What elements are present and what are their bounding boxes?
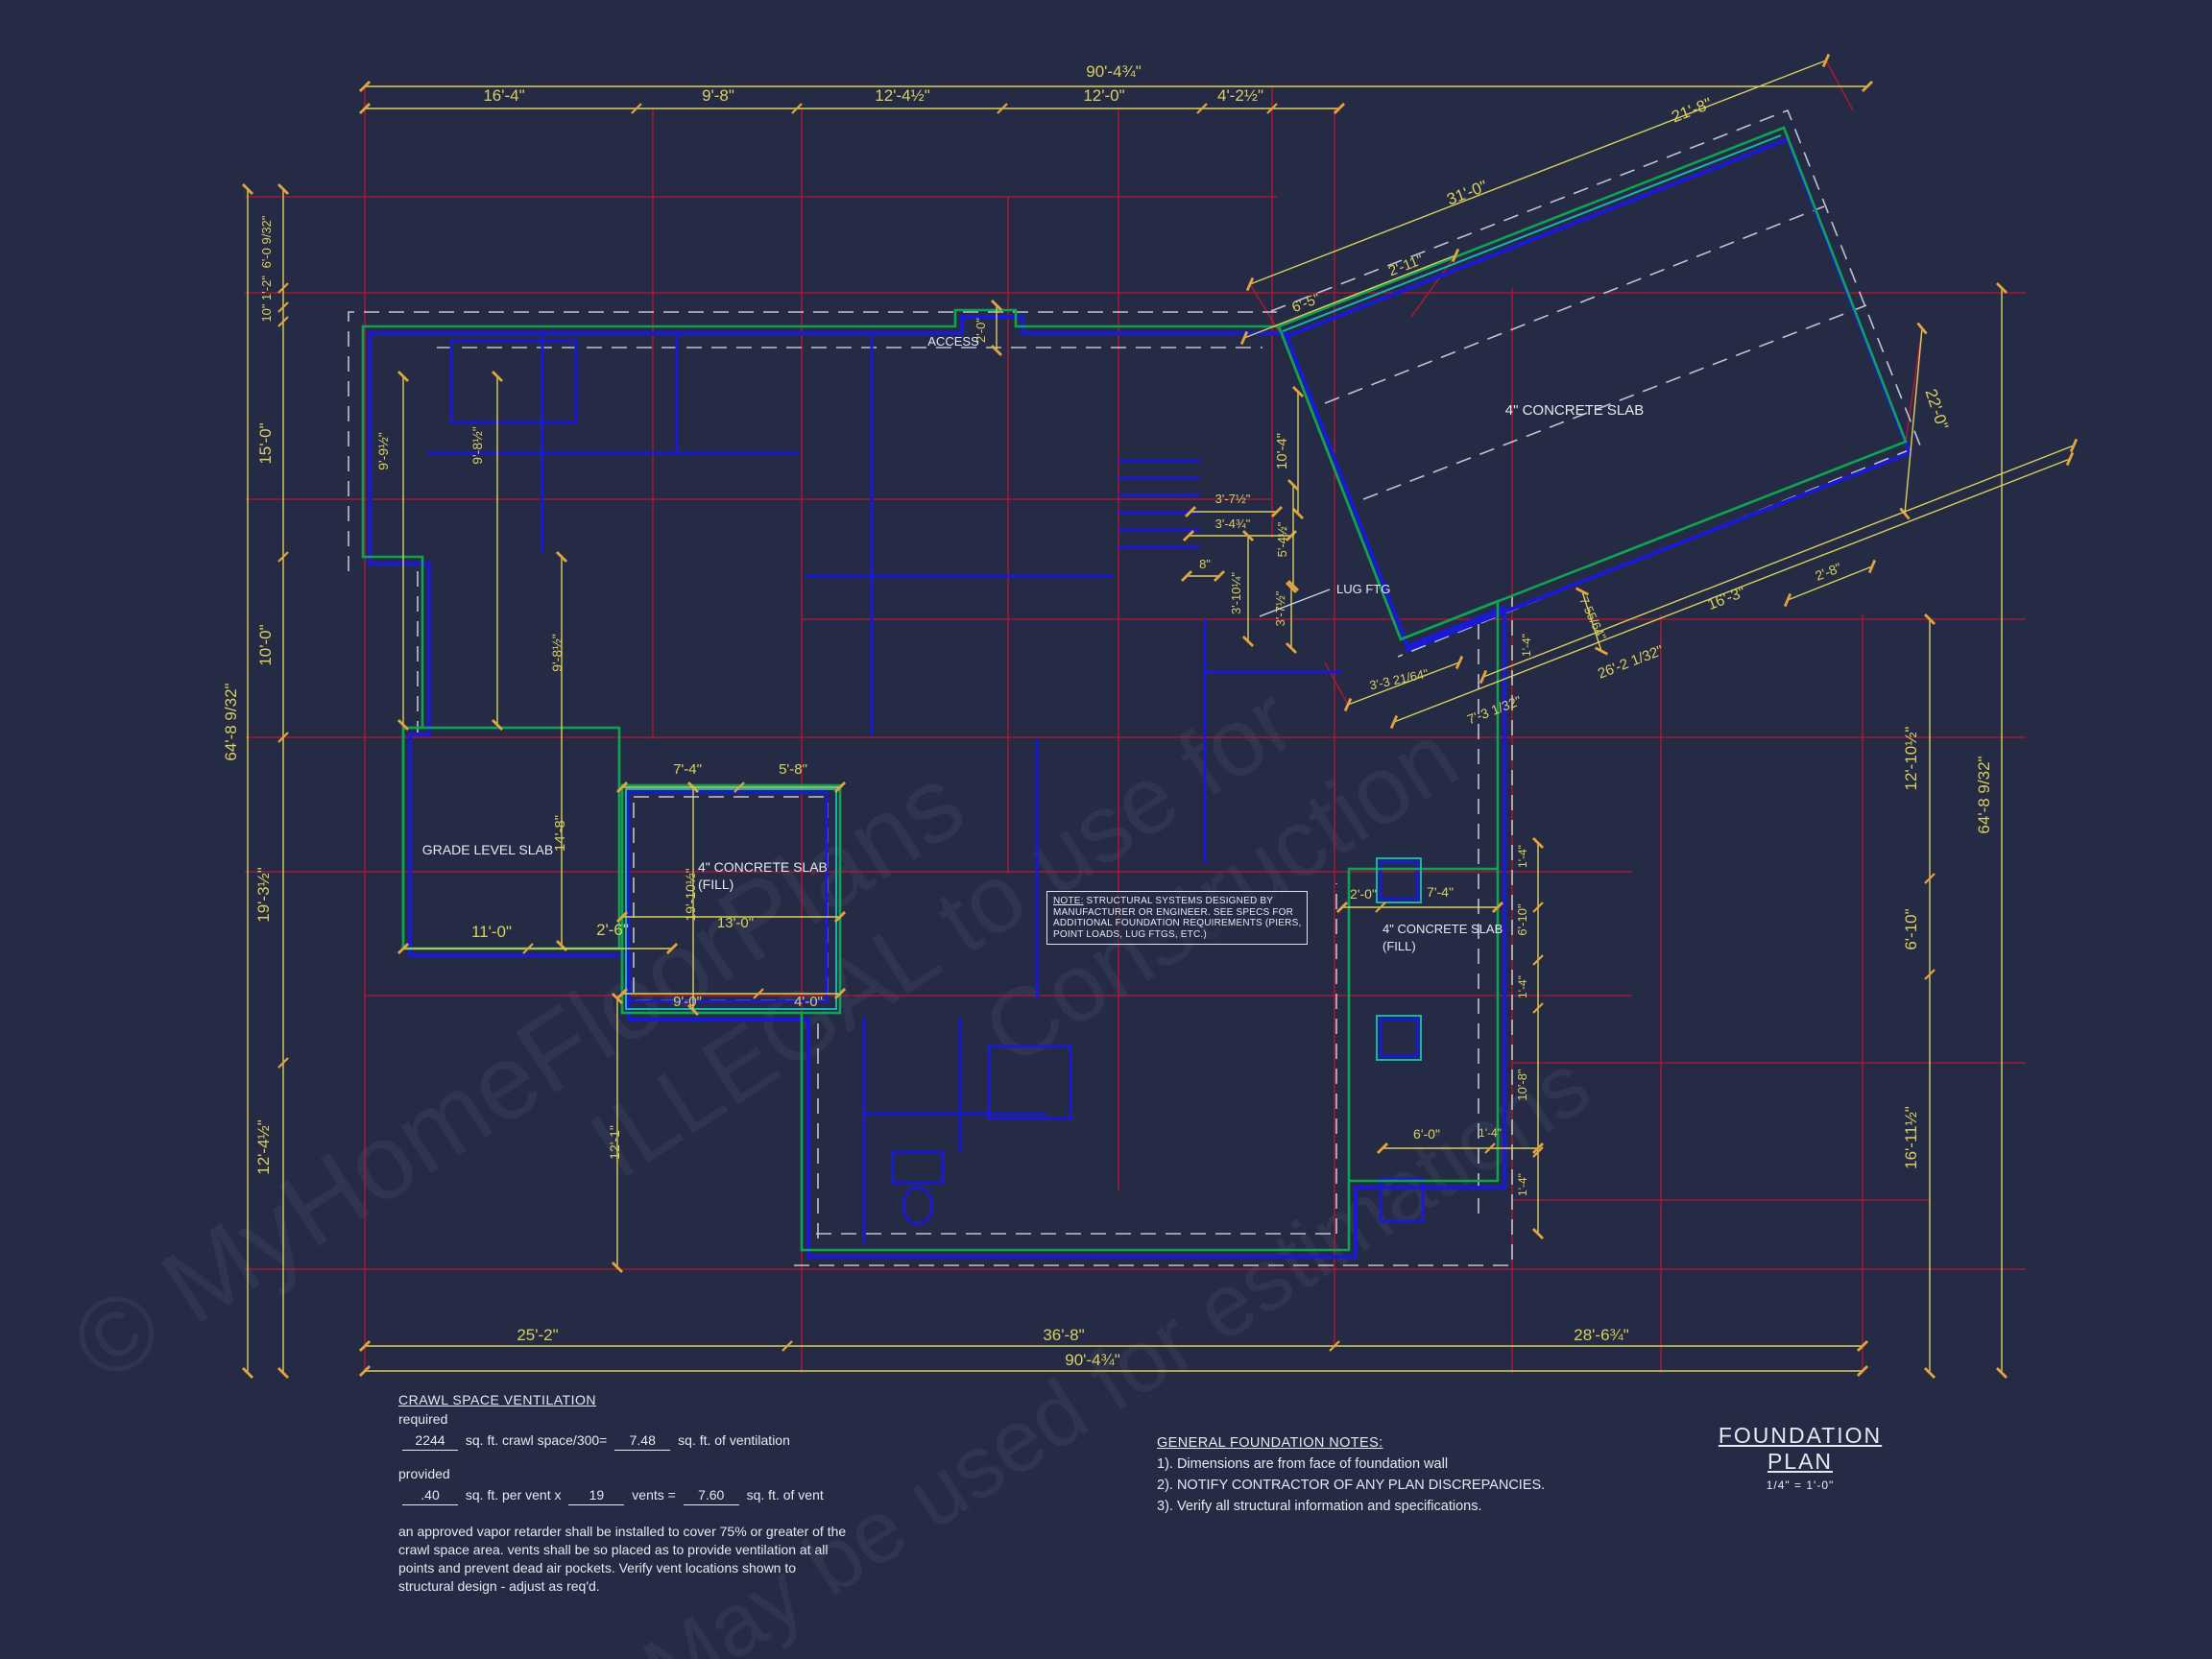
plan-label: 3'-10¼" [1229, 572, 1243, 614]
plan-label: 12'-4½" [875, 86, 929, 105]
plan-label: 2'-0" [1350, 886, 1377, 902]
plan-label: 3'-4¾" [1215, 517, 1251, 531]
plan-label: ACCESS [927, 334, 979, 349]
plan-label: 1'-4" [1479, 1126, 1502, 1140]
plan-label: 12'-10½" [1902, 727, 1920, 791]
dimension-lines [248, 60, 2074, 1373]
plan-label: 7'-4" [1427, 884, 1454, 900]
plan-label: 16'-3" [1705, 585, 1747, 613]
plan-label: 3'-3 21/64" [1368, 666, 1430, 693]
general-foundation-notes: GENERAL FOUNDATION NOTES: 1). Dimensions… [1157, 1432, 1545, 1517]
plan-label: 8" [1199, 557, 1211, 571]
plan-label: 9'-8" [702, 86, 734, 105]
plan-label: 9'-8½" [549, 634, 565, 672]
structural-note-line4: POINT LOADS, LUG FTGS, ETC.) [1053, 929, 1207, 940]
crawl-provided-label: provided [398, 1464, 898, 1483]
crawl-provided-line: .40 sq. ft. per vent x 19 vents = 7.60 s… [398, 1485, 898, 1505]
plan-label: 9'-8½" [469, 426, 485, 465]
structural-note-box: NOTE: STRUCTURAL SYSTEMS DESIGNED BY MAN… [1046, 891, 1308, 945]
plan-label: 19'-3½" [254, 867, 273, 922]
plan-label: 11'-0" [471, 923, 512, 941]
plan-label: (FILL) [1382, 939, 1416, 953]
plan-label: 1'-4" [1516, 975, 1529, 998]
crawl-required-line: 2244 sq. ft. crawl space/300= 7.48 sq. f… [398, 1431, 898, 1451]
plan-label: 64'-8 9/32" [222, 683, 240, 760]
plan-label: 10'-8" [1515, 1069, 1529, 1101]
plan-label: 1'-4" [1516, 1173, 1529, 1196]
crawl-ventilation-required-value: 7.48 [614, 1431, 670, 1451]
plan-label: 5'-8" [779, 761, 807, 778]
structural-note-line3: ADDITIONAL FOUNDATION REQUIREMENTS (PIER… [1053, 918, 1301, 928]
foundation-plan-drawing: © MyHomeFloorPlansILLEGAL to use forCons… [0, 0, 2212, 1659]
foundation-plan-sheet: © MyHomeFloorPlansILLEGAL to use forCons… [0, 0, 2212, 1659]
plan-label: 12'-1" [607, 1125, 622, 1160]
plan-label: GRADE LEVEL SLAB [422, 842, 553, 857]
vent-area-value: .40 [402, 1485, 458, 1505]
structural-note-line2: MANUFACTURER OR ENGINEER. SEE SPECS FOR [1053, 907, 1293, 918]
plan-label: 13'-0" [717, 915, 754, 931]
plan-label: 4" CONCRETE SLAB [1382, 922, 1503, 936]
plan-label: 16'-4" [483, 86, 524, 105]
structural-note-line1: STRUCTURAL SYSTEMS DESIGNED BY [1084, 896, 1274, 906]
plan-label: 21'-8" [1669, 94, 1714, 126]
plan-label: 6'-10" [1515, 903, 1529, 936]
plan-label: 4'-0" [794, 994, 823, 1010]
crawl-provided-text3: sq. ft. of vent [747, 1487, 824, 1503]
general-notes-heading: GENERAL FOUNDATION NOTES: [1157, 1432, 1545, 1454]
crawl-required-text1: sq. ft. crawl space/300= [466, 1432, 607, 1448]
plan-label: 4" CONCRETE SLAB [698, 859, 828, 875]
general-note-3: 3). Verify all structural information an… [1157, 1496, 1545, 1517]
crawl-provided-text2: vents = [632, 1487, 676, 1503]
plan-label: 6'-0 9/32" [259, 215, 274, 268]
crawl-provided-text1: sq. ft. per vent x [466, 1487, 562, 1503]
plan-label: (FILL) [698, 877, 733, 892]
plan-label: 22'-0" [1922, 387, 1952, 432]
plan-label: 28'-6¾" [1574, 1326, 1628, 1344]
general-note-2: 2). NOTIFY CONTRACTOR OF ANY PLAN DISCRE… [1157, 1475, 1545, 1496]
plan-label: 6'-0" [1413, 1126, 1440, 1142]
plan-label: 1'-4" [1520, 634, 1533, 657]
plan-label: 4" CONCRETE SLAB [1505, 402, 1645, 419]
sheet-scale: 1/4" = 1'-0" [1690, 1479, 1911, 1492]
plan-label: 12'-0" [1083, 86, 1124, 105]
plan-label: 5'-4½" [1275, 521, 1289, 557]
plan-label: 7 55/64" [1576, 594, 1609, 642]
plan-label: 25'-2" [517, 1326, 558, 1344]
plan-label: 9'-9½" [375, 432, 391, 470]
title-block: FOUNDATION PLAN 1/4" = 1'-0" [1690, 1423, 1911, 1492]
plan-label: 4'-2½" [1217, 86, 1263, 105]
crawl-ventilation-heading: CRAWL SPACE VENTILATION [398, 1390, 898, 1409]
plan-label: 14'-8" [552, 815, 568, 852]
vent-total-value: 7.60 [684, 1485, 739, 1505]
plan-label: 10'-0" [256, 624, 275, 665]
grid-lines [245, 60, 2026, 1373]
plan-labels: 90'-4¾"16'-4"9'-8"12'-4½"12'-0"4'-2½"31'… [222, 62, 1993, 1369]
lug-ftg-leader [1260, 589, 1330, 616]
plan-label: 26'-2 1/32" [1596, 642, 1666, 683]
plan-label: 36'-8" [1043, 1326, 1084, 1344]
plan-label: 1'-4" [1516, 845, 1529, 868]
plan-label: 7'-3 1/32" [1465, 692, 1524, 727]
plan-label: 3'-7½" [1273, 590, 1287, 626]
plan-label: 1'-2" [259, 276, 274, 301]
plan-label: 7'-4" [673, 761, 702, 778]
crawl-required-text2: sq. ft. of ventilation [678, 1432, 790, 1448]
plan-label: 31'-0" [1444, 177, 1489, 208]
plan-label: 6'-10" [1902, 908, 1920, 950]
sheet-title: FOUNDATION PLAN [1690, 1423, 1911, 1475]
plan-label: 12'-4½" [254, 1119, 273, 1174]
plan-label: 10" [259, 303, 274, 322]
plan-label: 64'-8 9/32" [1975, 756, 1993, 833]
plan-label: 90'-4¾" [1065, 1351, 1119, 1369]
plan-label: 9'-0" [673, 994, 702, 1010]
vapor-retarder-paragraph: an approved vapor retarder shall be inst… [398, 1523, 850, 1596]
plan-label: 2'-6" [596, 921, 629, 939]
plan-label: 15'-0" [256, 422, 275, 464]
crawl-required-label: required [398, 1409, 898, 1429]
plan-label: 16'-11½" [1902, 1106, 1920, 1169]
plan-label: LUG FTG [1336, 582, 1390, 596]
plan-label: 10'-4" [1274, 433, 1290, 469]
structural-note-heading: NOTE: [1053, 896, 1084, 906]
crawl-space-ventilation-block: CRAWL SPACE VENTILATION required 2244 sq… [398, 1390, 898, 1596]
plan-label: 19'-10½" [683, 868, 698, 921]
vent-count-value: 19 [568, 1485, 624, 1505]
general-note-1: 1). Dimensions are from face of foundati… [1157, 1454, 1545, 1475]
crawl-space-area-value: 2244 [402, 1431, 458, 1451]
plan-label: 3'-7½" [1215, 492, 1251, 506]
plan-label: 90'-4¾" [1086, 62, 1141, 81]
